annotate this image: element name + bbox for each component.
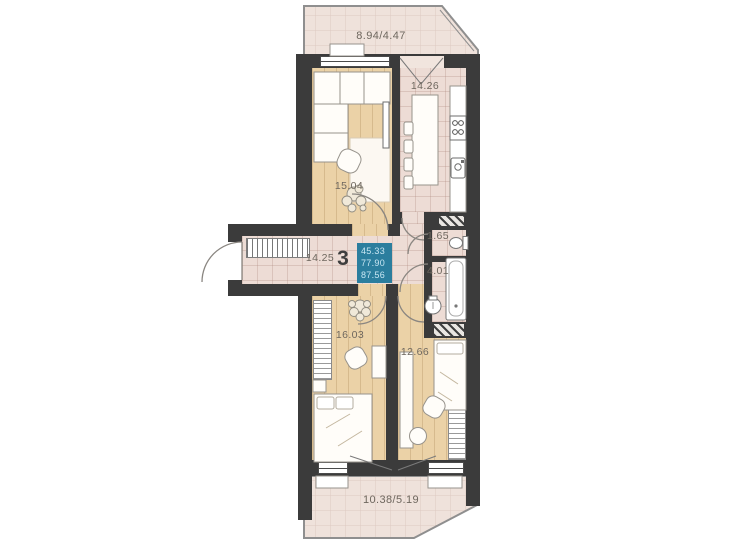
floor-plan: 8.94/4.47 14.26 15.04 14.25 1.65 4.01 16… [0, 0, 740, 553]
balcony-sill [330, 44, 364, 56]
toilet-icon [450, 237, 469, 250]
living-area-value: 45.33 [361, 245, 392, 257]
bed-double [314, 394, 372, 462]
living-room-label: 15.04 [335, 180, 363, 192]
door-arc-bathroom [400, 264, 428, 292]
hallway-label: 14.25 [306, 252, 334, 264]
dresser [372, 346, 386, 378]
kitchen-counter [450, 86, 466, 212]
bedroom-main-label: 16.03 [336, 329, 364, 341]
plant-icon [349, 300, 371, 321]
wc-label: 1.65 [427, 230, 449, 242]
stove-icon [450, 116, 466, 140]
apartment-area-value: 77.90 [361, 257, 392, 269]
dining-table [412, 95, 438, 185]
area-summary-box: 45.33 77.90 87.56 [357, 243, 392, 283]
desk-chair [410, 428, 427, 445]
balcony-top-label: 8.94/4.47 [356, 30, 405, 42]
bathroom-label: 4.01 [427, 265, 449, 277]
unit-number: 3 [337, 247, 349, 271]
kitchen-label: 14.26 [411, 80, 439, 92]
bedroom-main-chair [342, 344, 369, 371]
door-arc-wc [408, 234, 428, 254]
balcony-sill [316, 476, 348, 488]
bathroom-sink [425, 296, 441, 314]
kitchen-sink [451, 158, 465, 178]
total-area-value: 87.56 [361, 269, 392, 281]
door-arc-kitchen [402, 218, 424, 240]
balcony-door-mark-bottom-right [398, 456, 436, 470]
nightstand [313, 380, 326, 392]
balcony-sill [428, 476, 462, 488]
door-arc-entrance [202, 242, 242, 282]
balcony-bottom-label: 10.38/5.19 [363, 494, 419, 506]
bedroom-second-label: 12.66 [401, 346, 429, 358]
door-arc-bedroom-second [398, 296, 424, 322]
tv [383, 102, 389, 148]
